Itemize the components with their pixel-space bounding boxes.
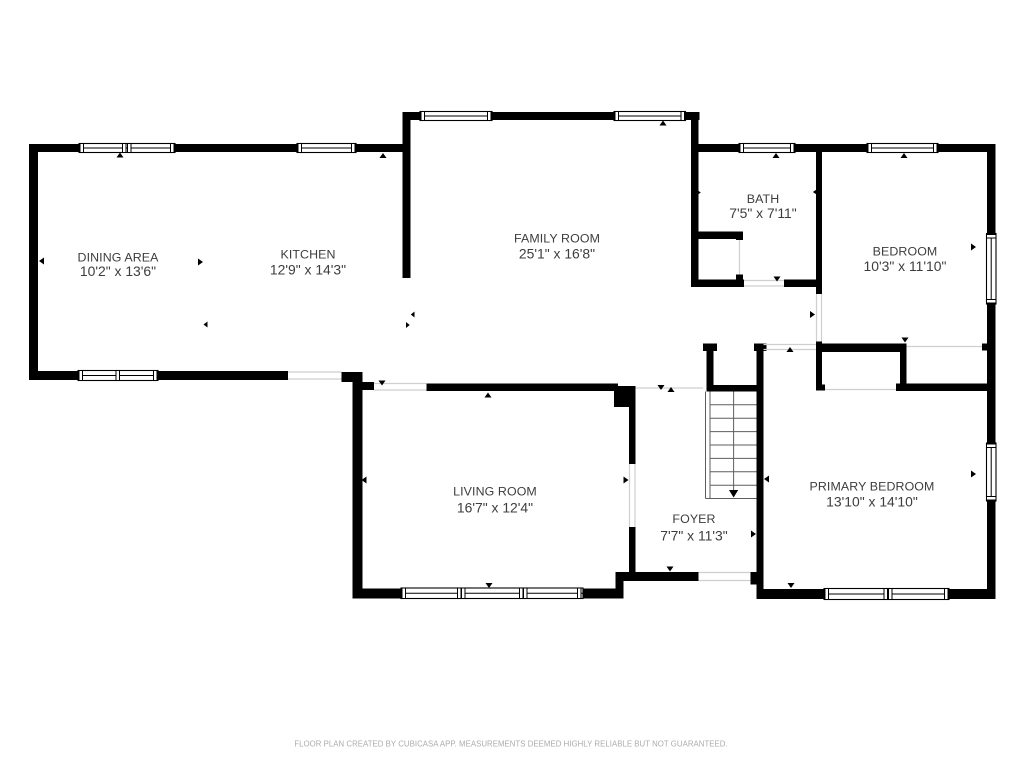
svg-text:LIVING ROOM: LIVING ROOM [453, 485, 537, 499]
svg-text:KITCHEN: KITCHEN [280, 247, 335, 261]
svg-text:PRIMARY BEDROOM: PRIMARY BEDROOM [810, 479, 935, 493]
svg-text:BATH: BATH [747, 192, 780, 206]
svg-text:FLOOR PLAN CREATED BY CUBICASA: FLOOR PLAN CREATED BY CUBICASA APP. MEAS… [294, 740, 727, 749]
svg-text:7'5" x 7'11": 7'5" x 7'11" [729, 205, 796, 221]
svg-text:12'9" x 14'3": 12'9" x 14'3" [270, 262, 346, 278]
svg-text:10'3" x 11'10": 10'3" x 11'10" [864, 258, 947, 274]
svg-text:16'7" x 12'4": 16'7" x 12'4" [457, 499, 533, 515]
svg-text:25'1" x 16'8": 25'1" x 16'8" [519, 246, 595, 262]
svg-text:7'7" x 11'3": 7'7" x 11'3" [660, 527, 727, 543]
svg-text:BEDROOM: BEDROOM [873, 244, 938, 258]
svg-text:13'10" x 14'10": 13'10" x 14'10" [826, 493, 918, 509]
svg-text:10'2" x 13'6": 10'2" x 13'6" [80, 263, 156, 279]
svg-text:FAMILY ROOM: FAMILY ROOM [514, 231, 600, 245]
svg-text:FOYER: FOYER [672, 512, 715, 526]
